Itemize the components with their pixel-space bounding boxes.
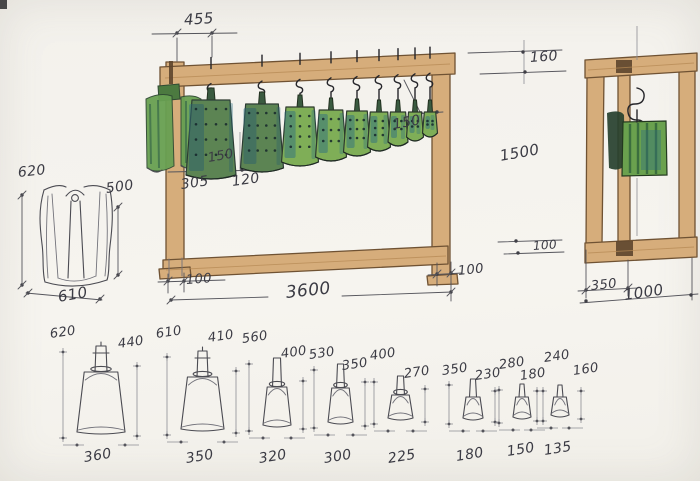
bell-sketch <box>59 342 141 447</box>
side-view <box>585 26 697 263</box>
sketch-page: 6204403606104103505604003205303503004002… <box>0 0 700 481</box>
bell-detail-sketches <box>59 342 585 447</box>
bell-sketch <box>533 385 585 430</box>
side-right-post <box>679 69 695 239</box>
bell-sketch <box>370 376 429 433</box>
bell-sketch <box>245 358 307 440</box>
front-right-foot <box>427 274 458 285</box>
bell-sketch <box>445 379 499 433</box>
garment-detail-sketch <box>40 186 112 287</box>
bell-sketch <box>163 347 240 444</box>
front-bottom-rail <box>163 246 448 278</box>
front-top-rail <box>160 53 455 87</box>
sketch-canvas <box>0 0 700 481</box>
bell-sketch <box>310 364 369 437</box>
side-left-post <box>586 75 604 246</box>
front-post-tenon <box>169 61 173 84</box>
scan-smudge <box>0 0 7 9</box>
